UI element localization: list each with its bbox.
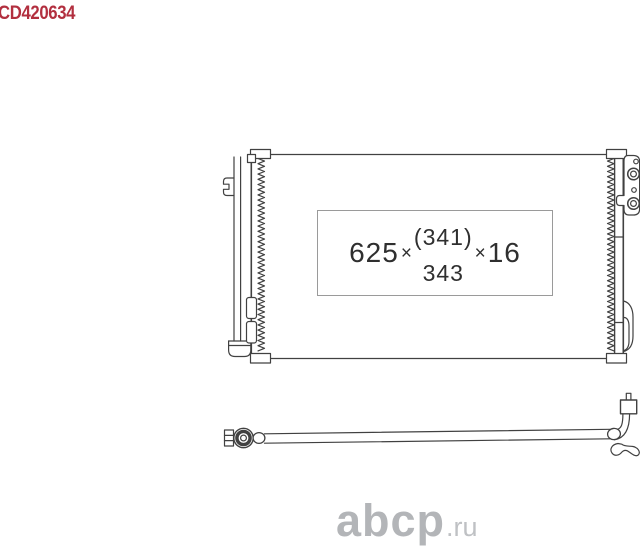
- port-plate-top-right: [617, 156, 640, 216]
- cap-bottom-right: [607, 354, 627, 364]
- dimension-label-box: 625 × (341) 343 × 16: [317, 210, 553, 296]
- catalog-image: CD420634 625 × (341) 343 × 16 abcp .ru: [0, 0, 640, 548]
- elbow-inner: [618, 414, 623, 430]
- ferrule-left: [253, 433, 265, 444]
- drier-connector-lower: [247, 322, 257, 344]
- dimension-height-alt: (341): [414, 220, 473, 256]
- tube-bottom-edge: [265, 439, 611, 443]
- fin-edge-right: [608, 159, 615, 351]
- part-code: CD420634: [0, 3, 75, 25]
- watermark-tld: .ru: [446, 514, 478, 541]
- service-valve: [621, 400, 637, 414]
- drier-top-connector: [248, 155, 256, 163]
- dimension-thickness: 16: [488, 237, 521, 269]
- cap-bottom-left: [251, 354, 271, 364]
- pipe-clip: [611, 444, 639, 456]
- dimension-height: 343: [423, 256, 464, 292]
- drier-connector-upper: [247, 298, 257, 319]
- dimension-height-fraction: (341) 343: [414, 220, 473, 291]
- multiply-sign-1: ×: [401, 243, 412, 265]
- pin-inner: [624, 318, 629, 351]
- tube-top-edge: [265, 429, 611, 434]
- spline-block: [225, 430, 234, 446]
- watermark: abcp .ru: [336, 498, 478, 543]
- dimension-width: 625: [349, 237, 399, 269]
- flange-hole: [241, 435, 247, 441]
- liquid-pipe-assembly: [225, 393, 640, 455]
- cap-top-right: [607, 150, 627, 159]
- multiply-sign-2: ×: [475, 243, 486, 265]
- watermark-brand: abcp: [336, 498, 445, 543]
- mounting-pin-bottom-right: [624, 301, 634, 352]
- valve-stem: [626, 393, 631, 400]
- mounting-bracket-left: [224, 178, 235, 196]
- fin-edge-left: [258, 159, 265, 351]
- ferrule-right: [607, 428, 621, 440]
